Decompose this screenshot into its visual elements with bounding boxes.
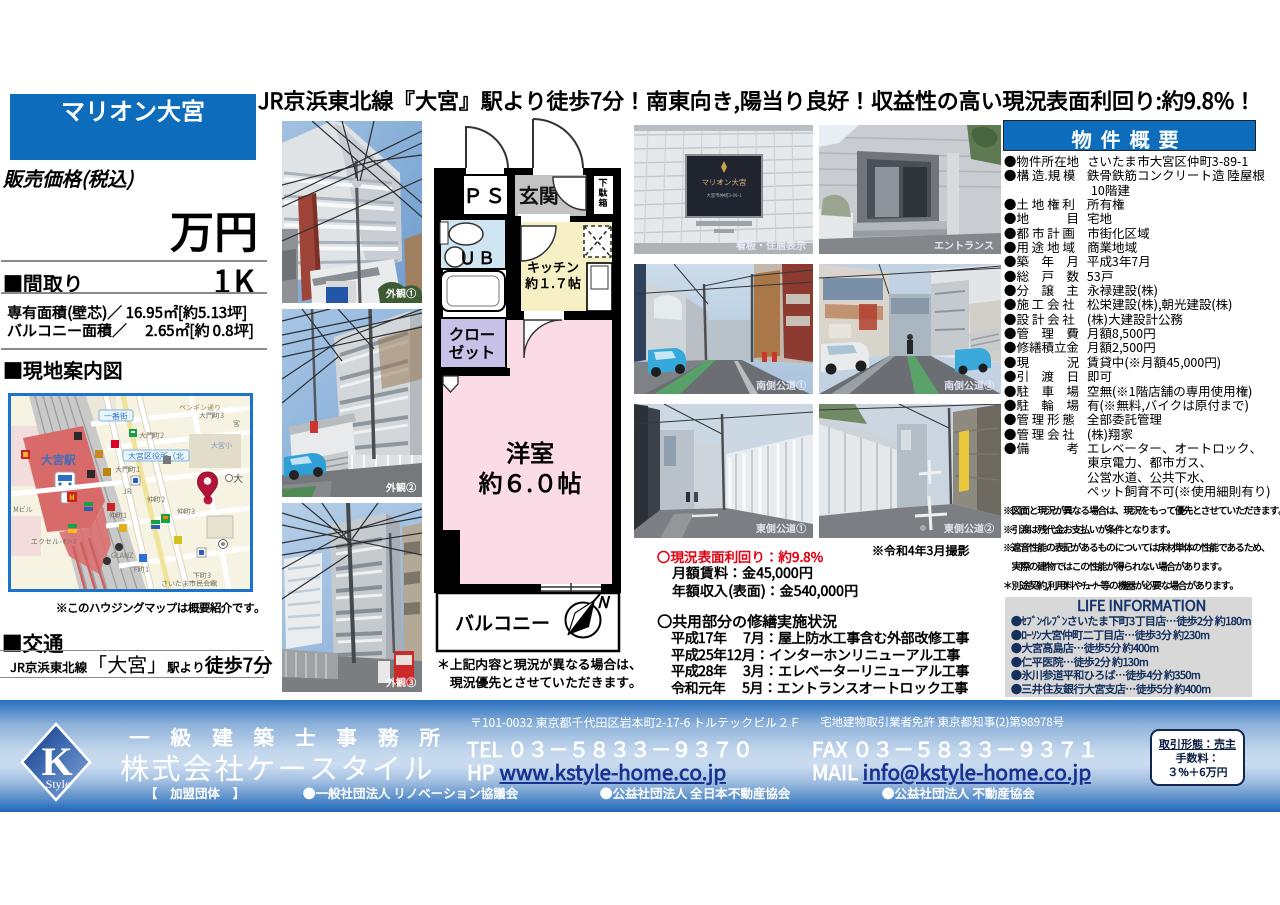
svg-text:さいたま市民会館: さいたま市民会館 [161, 579, 217, 589]
svg-text:GLANZ: GLANZ [111, 551, 134, 561]
svg-text:エクセル･ｵﾌｨｽ: エクセル･ｵﾌｨｽ [31, 537, 77, 547]
svg-text:一番街: 一番街 [104, 411, 128, 422]
svg-text:看板・住居表示: 看板・住居表示 [736, 237, 806, 252]
svg-text:JR: JR [122, 487, 133, 497]
svg-text:約６.０帖: 約６.０帖 [479, 464, 582, 499]
svg-text:東側公道②: 東側公道② [943, 520, 995, 535]
svg-text:大門町2: 大門町2 [139, 431, 165, 441]
svg-text:M: M [69, 493, 75, 503]
svg-text:外観③: 外観③ [385, 674, 417, 689]
svg-text:ゼット: ゼット [449, 341, 496, 363]
svg-text:東側公道①: 東側公道① [755, 520, 807, 535]
svg-text:エントランス: エントランス [934, 237, 994, 252]
svg-text:仲町1: 仲町1 [109, 511, 127, 521]
svg-text:大: 大 [233, 470, 243, 485]
svg-text:大門町1: 大門町1 [115, 465, 140, 475]
svg-text:大宮市仲町3-89-1: 大宮市仲町3-89-1 [705, 192, 742, 199]
svg-text:大宮小: 大宮小 [211, 441, 232, 451]
svg-text:南側公道②: 南側公道② [944, 377, 995, 392]
svg-text:Mビル: Mビル [13, 505, 33, 515]
svg-text:下町1: 下町1 [131, 565, 149, 575]
svg-text:ペンギン通り: ペンギン通り [179, 403, 221, 413]
svg-text:仲町3: 仲町3 [177, 507, 195, 517]
svg-text:マリオン大宮: マリオン大宮 [702, 177, 747, 188]
svg-text:大宮駅: 大宮駅 [41, 452, 76, 468]
svg-text:ＵＢ: ＵＢ [459, 244, 497, 269]
svg-text:南側公道①: 南側公道① [756, 377, 807, 392]
svg-text:外観①: 外観① [385, 285, 417, 300]
svg-text:外観②: 外観② [385, 479, 417, 494]
svg-text:宮: 宮 [233, 419, 240, 429]
svg-text:大宮区役所（北: 大宮区役所（北 [128, 451, 184, 462]
svg-text:ＰＳ: ＰＳ [463, 180, 507, 209]
svg-text:約１.７帖: 約１.７帖 [525, 273, 582, 292]
svg-text:箱: 箱 [598, 196, 607, 209]
svg-text:バルコニー: バルコニー [455, 609, 550, 636]
svg-text:仲町2: 仲町2 [147, 495, 166, 505]
svg-text:Style: Style [46, 777, 71, 791]
